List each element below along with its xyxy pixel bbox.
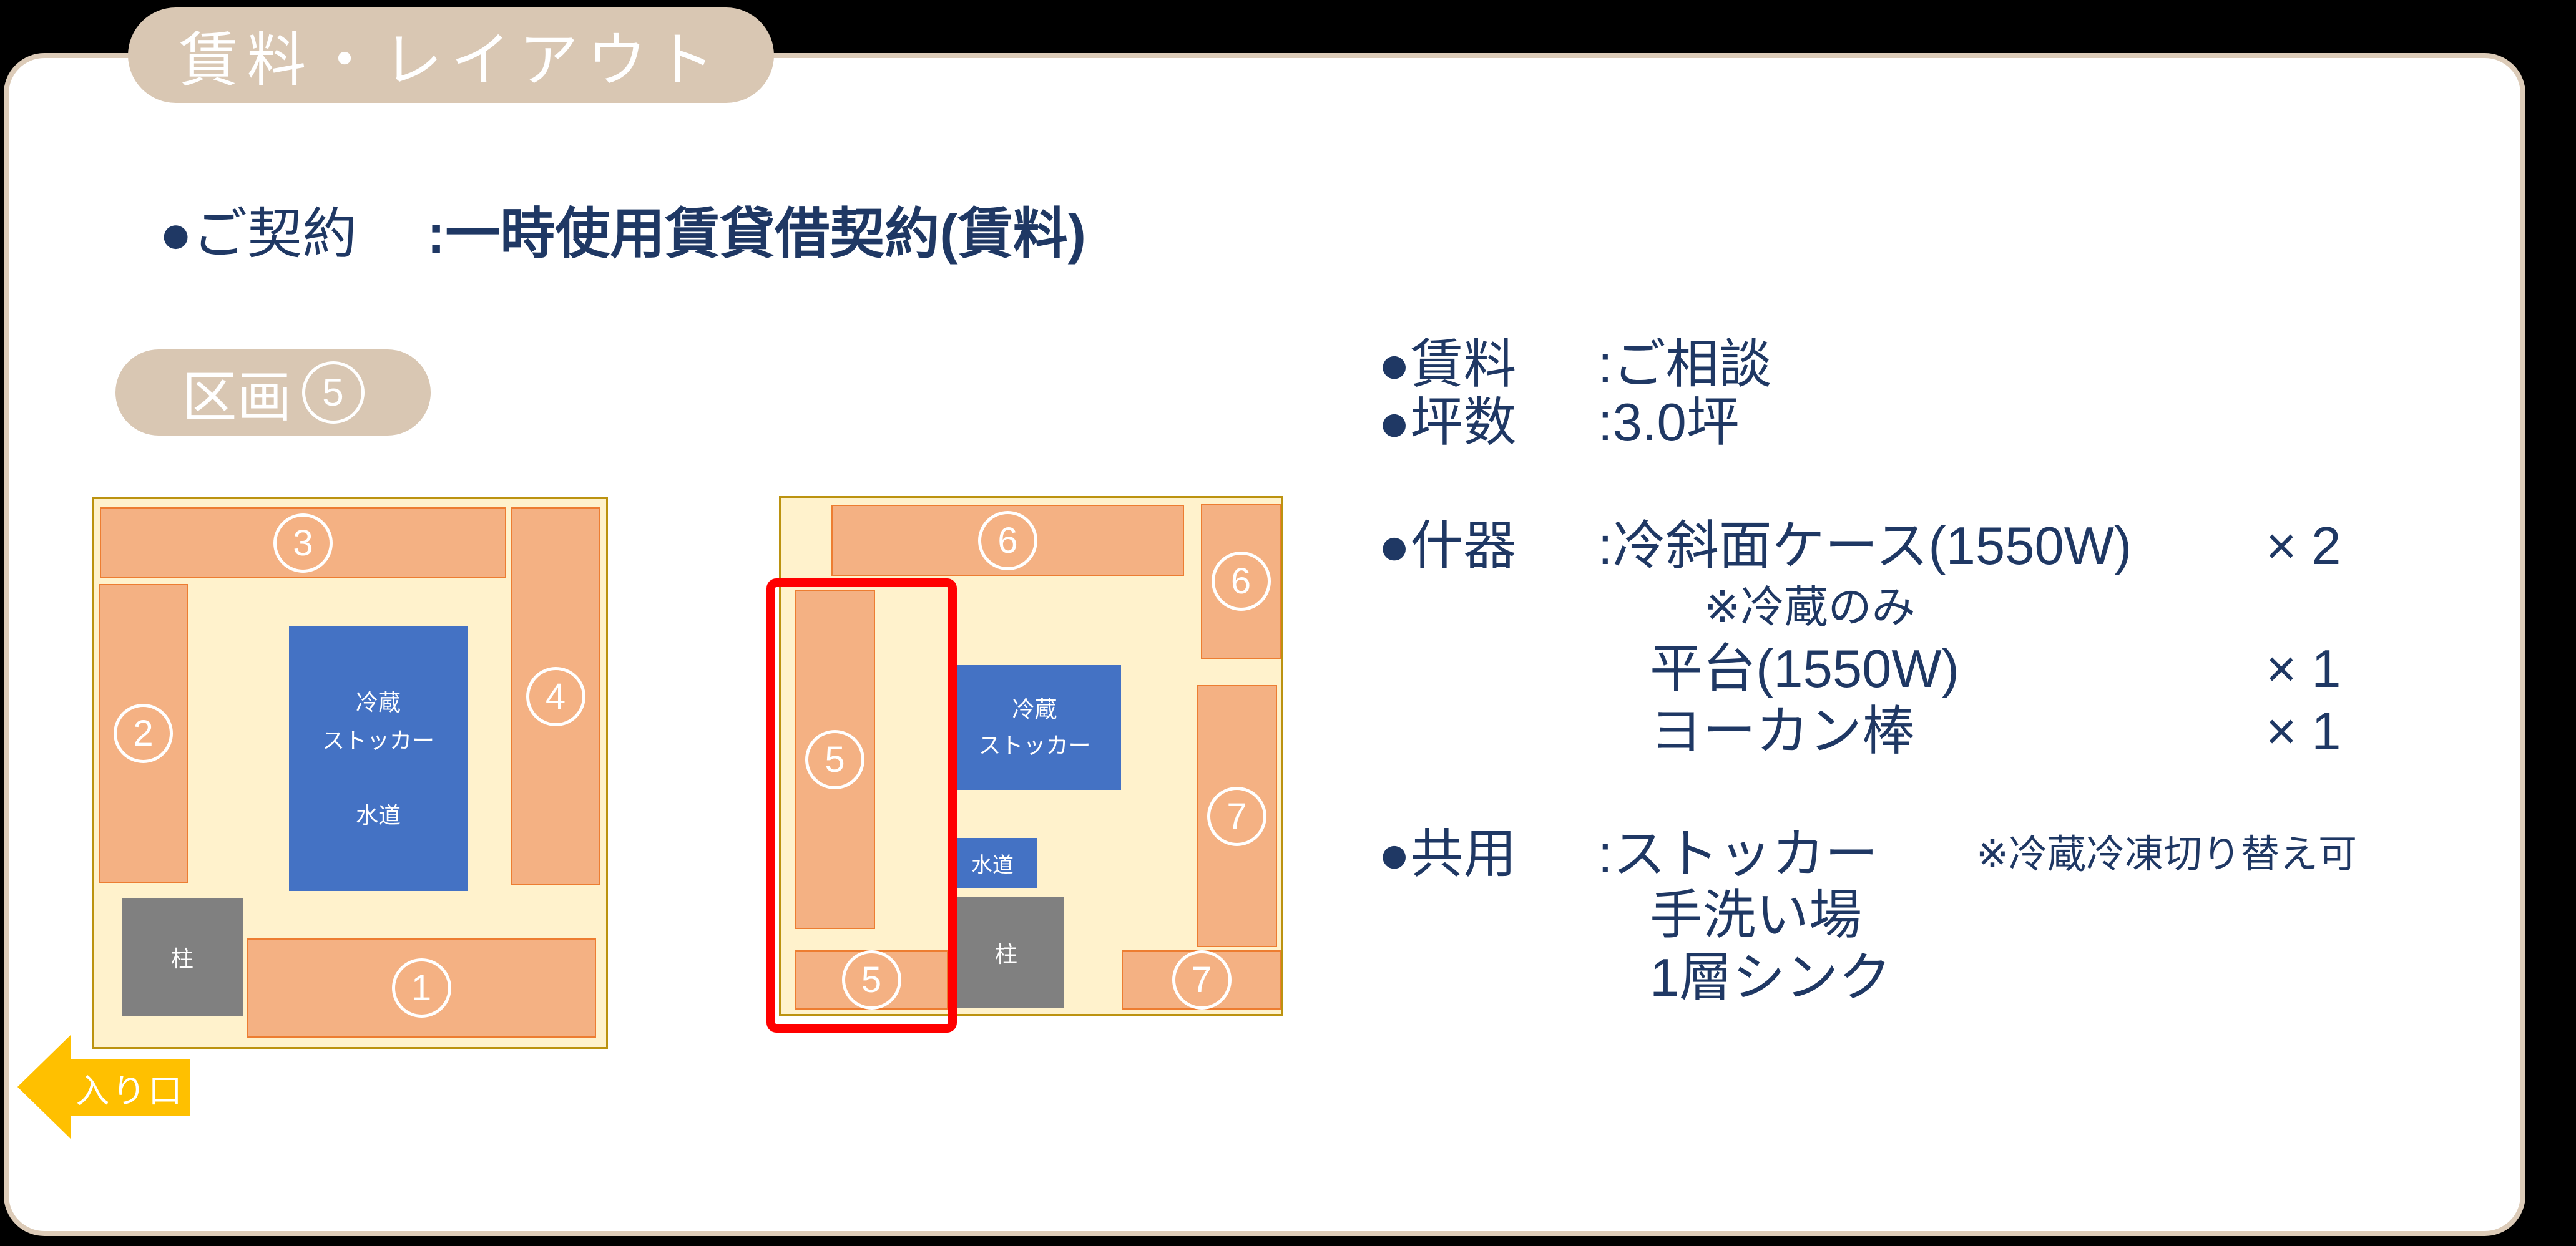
stocker-right-line2: ストッカー xyxy=(978,728,1090,764)
shared-item1: :ストッカー xyxy=(1598,824,1878,886)
fixtures-item2-qty: × 1 xyxy=(2266,638,2341,701)
stall-4-number: 4 xyxy=(526,667,585,726)
contract-value: :一時使用賃貸借契約(賃料) xyxy=(427,203,1086,265)
shared-item3: 1層シンク xyxy=(1650,947,1891,1010)
stall-2-number: 2 xyxy=(114,704,173,763)
shared-note: ※冷蔵冷凍切り替え可 xyxy=(1976,824,2357,886)
section-5-highlight-box xyxy=(766,578,957,1033)
rent-value: :ご相談 xyxy=(1598,334,1772,396)
stall-4: 4 xyxy=(511,507,600,885)
area-value: :3.0坪 xyxy=(1598,392,1740,454)
stall-6-top-number: 6 xyxy=(978,511,1037,570)
entrance-arrow: 入り口 xyxy=(17,1034,190,1139)
title-badge: 賃料・レイアウト xyxy=(128,7,774,103)
stocker-box-left: 冷蔵 ストッカー 水道 xyxy=(289,626,468,891)
stall-7-vertical: 7 xyxy=(1197,685,1277,947)
area-row: ●坪数 :3.0坪 xyxy=(1378,392,1516,454)
stall-3: 3 xyxy=(100,507,506,578)
water-label-right: 水道 xyxy=(971,848,1014,879)
stall-6-side-number: 6 xyxy=(1212,552,1271,611)
section-badge: 区画 5 xyxy=(115,349,431,436)
shared-label: ●共用 xyxy=(1378,825,1516,884)
page-title: 賃料・レイアウト xyxy=(179,12,723,98)
water-box-right: 水道 xyxy=(948,838,1037,888)
contract-label: ●ご契約 xyxy=(159,203,357,265)
fixtures-row: ●什器 :冷斜面ケース(1550W) × 2 xyxy=(1378,515,1516,578)
fixtures-label: ●什器 xyxy=(1378,517,1516,576)
fixtures-item1-qty: × 2 xyxy=(2266,515,2341,578)
section-badge-prefix: 区画 xyxy=(182,353,291,432)
stall-7-vertical-number: 7 xyxy=(1207,787,1266,846)
stall-1-number: 1 xyxy=(392,958,451,1018)
rent-row: ●賃料 :ご相談 xyxy=(1378,334,1516,396)
fixtures-item2: 平台(1550W) xyxy=(1650,638,1959,701)
stocker-right-line1: 冷蔵 xyxy=(1012,691,1057,728)
rent-label: ●賃料 xyxy=(1378,335,1516,394)
stall-6-side: 6 xyxy=(1201,504,1281,659)
entrance-arrow-head-icon xyxy=(17,1034,71,1139)
stall-7-bottom: 7 xyxy=(1122,950,1281,1010)
stocker-left-line2: ストッカー xyxy=(322,721,434,759)
stall-6-top: 6 xyxy=(831,505,1184,576)
shared-item2: 手洗い場 xyxy=(1650,885,1862,947)
fixtures-item3-qty: × 1 xyxy=(2266,701,2341,763)
pillar-right-label: 柱 xyxy=(995,937,1017,969)
stall-7-bottom-number: 7 xyxy=(1172,950,1232,1010)
contract-line: ●ご契約 :一時使用賃貸借契約(賃料) xyxy=(159,203,357,265)
fixtures-item1: :冷斜面ケース(1550W) xyxy=(1598,515,2132,578)
section-number-circle: 5 xyxy=(302,361,365,424)
stocker-box-right: 冷蔵 ストッカー xyxy=(948,665,1121,790)
slide-background: 賃料・レイアウト ●ご契約 :一時使用賃貸借契約(賃料) 区画 5 3 2 4 … xyxy=(0,0,2576,1246)
fixtures-note: ※冷蔵のみ xyxy=(1704,576,1916,638)
shared-row: ●共用 :ストッカー ※冷蔵冷凍切り替え可 xyxy=(1378,824,1516,886)
entrance-arrow-body: 入り口 xyxy=(71,1059,190,1116)
stall-2: 2 xyxy=(99,584,188,883)
stall-3-number: 3 xyxy=(273,513,333,573)
water-label-left: 水道 xyxy=(356,796,401,834)
area-label: ●坪数 xyxy=(1378,393,1516,452)
fixtures-item3: ヨーカン棒 xyxy=(1650,701,1915,763)
pillar-left: 柱 xyxy=(122,898,243,1016)
entrance-label: 入り口 xyxy=(76,1063,185,1112)
pillar-left-label: 柱 xyxy=(171,941,193,973)
stocker-left-line1: 冷蔵 xyxy=(356,683,401,721)
stall-1: 1 xyxy=(247,938,596,1038)
floorplan-left: 3 2 4 1 冷蔵 ストッカー 水道 柱 xyxy=(92,497,608,1049)
pillar-right: 柱 xyxy=(948,897,1064,1008)
